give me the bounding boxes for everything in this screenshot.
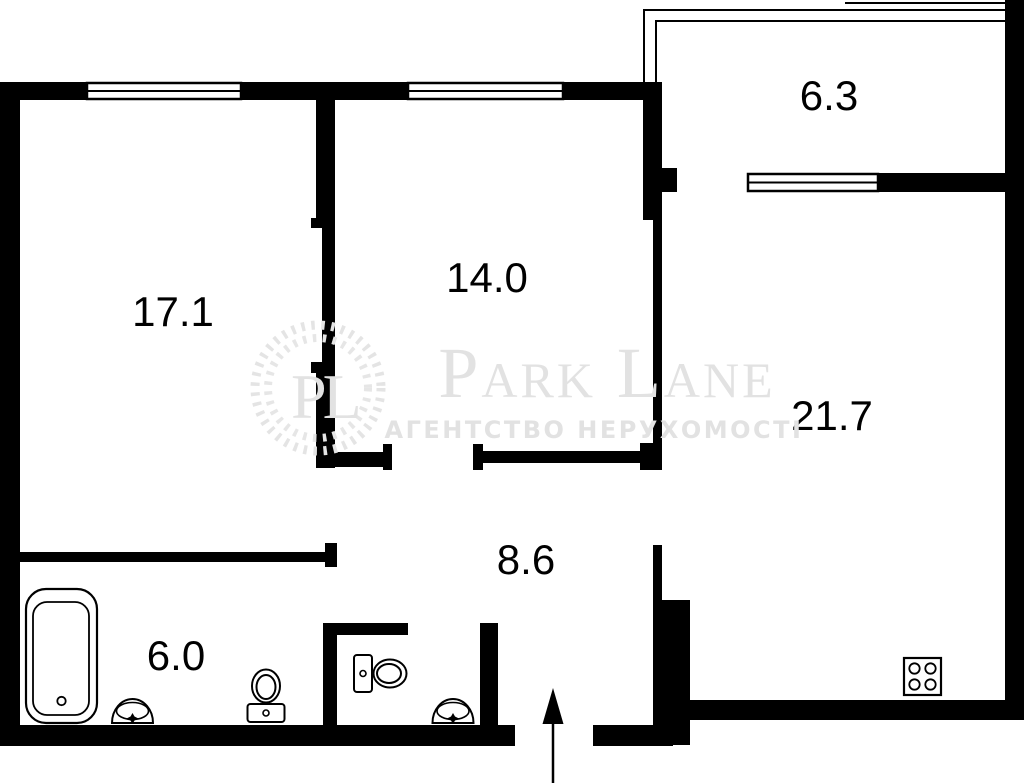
wall <box>473 444 483 470</box>
wall <box>662 168 677 192</box>
wall <box>690 700 1024 720</box>
entrance-arrow-icon <box>543 688 564 783</box>
wall <box>643 100 662 220</box>
watermark: PL Park Lane АГЕНТСТВО НЕРУХОМОСТІ <box>255 325 803 451</box>
wall <box>1005 0 1024 720</box>
wall <box>878 173 1005 192</box>
balcony-outline <box>644 3 1005 82</box>
window-icon <box>748 174 878 191</box>
wall <box>323 623 337 727</box>
wc-sink-icon <box>433 699 474 724</box>
sink-icon <box>112 699 153 724</box>
room-label-balcony: 6.3 <box>800 72 858 119</box>
window-icon <box>87 83 241 99</box>
watermark-monogram: PL <box>291 361 359 432</box>
toilet-icon <box>248 670 285 723</box>
wall <box>0 725 515 746</box>
room-label-bedroom-2: 14.0 <box>446 254 528 301</box>
room-label-bedroom-1: 17.1 <box>132 288 214 335</box>
wall <box>383 444 392 470</box>
wall <box>480 623 498 727</box>
wall <box>0 82 20 746</box>
wall <box>653 600 690 745</box>
window-icon <box>408 83 563 99</box>
wall <box>325 623 408 635</box>
bathtub-icon <box>26 589 97 723</box>
watermark-brand: Park Lane <box>438 333 775 413</box>
stove-icon <box>904 658 941 695</box>
windows <box>87 83 878 191</box>
wall <box>0 552 325 562</box>
room-label-hallway: 8.6 <box>497 536 555 583</box>
wall <box>473 451 654 463</box>
wall <box>325 543 337 567</box>
wall <box>316 100 335 223</box>
watermark-tagline: АГЕНТСТВО НЕРУХОМОСТІ <box>385 416 804 444</box>
wall <box>653 545 662 605</box>
room-label-bathroom: 6.0 <box>147 632 205 679</box>
floor-plan-canvas: 17.1 14.0 6.3 21.7 8.6 6.0 PL Park Lane … <box>0 0 1024 783</box>
floor-plan: 17.1 14.0 6.3 21.7 8.6 6.0 PL Park Lane … <box>0 0 1024 783</box>
wc-toilet-icon <box>354 655 407 692</box>
